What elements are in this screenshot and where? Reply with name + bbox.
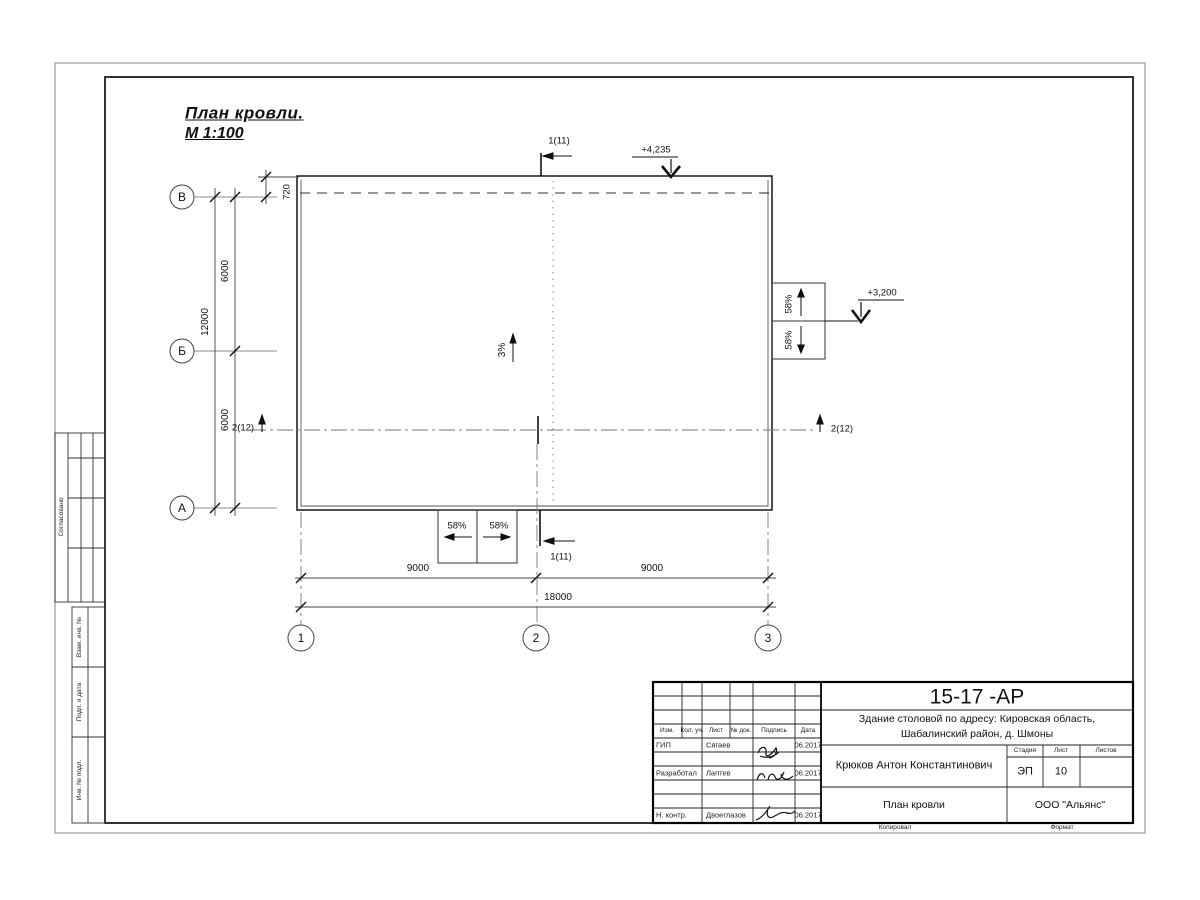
stage-header: Стадия: [1014, 748, 1036, 755]
axis-row-v: В: [178, 191, 186, 203]
axis-row-b: Б: [178, 345, 186, 357]
axis-col-1: 1: [298, 632, 305, 644]
dim-6000-top: 6000: [221, 260, 231, 282]
dim-9000-left: 9000: [407, 564, 429, 574]
row-razrabotal-date: 06.2017: [794, 769, 821, 777]
dim-18000-label: 18000: [544, 593, 572, 603]
dim-6000-bottom: 6000: [221, 409, 231, 431]
elevation-roof-label: +4,235: [641, 145, 670, 155]
row-nkontr-role: Н. контр.: [656, 811, 687, 819]
stage-value: ЭП: [1017, 767, 1033, 778]
elevation-mark-canopy-icon: [825, 300, 904, 322]
axis-col-2: 2: [533, 632, 540, 644]
format-label: Формат: [1050, 825, 1073, 832]
page-title: План кровли.: [185, 105, 304, 122]
row-gip-date: 06.2017: [794, 741, 821, 749]
row-nkontr-name: Двоеглазов: [706, 811, 746, 819]
sheet-number: 10: [1055, 767, 1067, 778]
drawing-title: План кровли: [883, 800, 945, 811]
margin-signdate-label: Подп. и дата: [77, 683, 84, 721]
row-razrabotal-name: Лаптев: [706, 769, 731, 777]
col-header-izm: Изм.: [660, 728, 674, 735]
margin-replace-label: Взам. инв. №: [77, 617, 84, 657]
roof-outline: [297, 176, 772, 510]
row-razrabotal-role: Разработал: [656, 769, 697, 777]
copied-label: Копировал: [879, 825, 912, 832]
dim-9000-right: 9000: [641, 564, 663, 574]
slope-58-bottom-left: 58%: [447, 521, 466, 531]
section-2-12-right: 2(12): [831, 424, 853, 434]
project-line2: Шабалинский район, д. Шмоны: [901, 729, 1053, 740]
sheets-header: Листов: [1095, 748, 1116, 755]
row-gip-name: Сягаев: [706, 741, 730, 749]
slope-arrow-icon: [510, 334, 516, 362]
elevation-mark-roof-icon: [632, 157, 680, 177]
col-header-kol: Кол. уч.: [680, 728, 703, 735]
author-name: Крюков Антон Константинович: [836, 761, 993, 772]
margin-inventory-label: Инв. № подл.: [77, 760, 84, 801]
col-header-sign: Подпись: [761, 728, 787, 735]
axis-row-a: А: [178, 502, 186, 514]
project-line1: Здание столовой по адресу: Кировская обл…: [859, 714, 1095, 725]
section-1-11-top: 1(11): [548, 136, 569, 146]
drawing-sheet: План кровли. М 1:100 В Б А 1 2 3 720 600…: [0, 0, 1200, 900]
section-1-11-marks: [538, 153, 575, 546]
col-header-date: Дата: [801, 728, 815, 735]
slope-58-bottom-right: 58%: [489, 521, 508, 531]
row-gip-role: ГИП: [656, 741, 671, 749]
section-1-11-bottom: 1(11): [550, 552, 571, 562]
col-header-doc: № док.: [731, 728, 752, 735]
axis-lines: [194, 197, 768, 625]
signature-gip: [758, 747, 779, 758]
slope-58-right-top: 58%: [784, 294, 794, 313]
sheet-header: Лист: [1054, 748, 1068, 755]
row-nkontr-date: 06.2017: [794, 811, 821, 819]
slope-58-right-bottom: 58%: [784, 330, 794, 349]
dim-720-label: 720: [282, 184, 292, 200]
doc-number: 15-17 -АР: [930, 687, 1025, 708]
section-2-12-arrows: [259, 415, 823, 432]
dim-12000-label: 12000: [201, 308, 211, 336]
company-name: ООО "Альянс": [1035, 800, 1105, 811]
col-header-list: Лист: [709, 728, 723, 735]
elevation-canopy-label: +3,200: [867, 288, 896, 298]
margin-approve-label: Согласовано: [59, 497, 66, 536]
signature-razrabotal: [757, 772, 793, 780]
section-2-12-left: 2(12): [232, 423, 254, 433]
page-scale: М 1:100: [185, 126, 244, 142]
axis-col-3: 3: [765, 632, 772, 644]
dimension-lines: [215, 170, 776, 607]
slope-3-label: 3%: [498, 343, 508, 357]
dimension-ticks: [210, 172, 773, 612]
signature-strokes: [756, 747, 795, 820]
